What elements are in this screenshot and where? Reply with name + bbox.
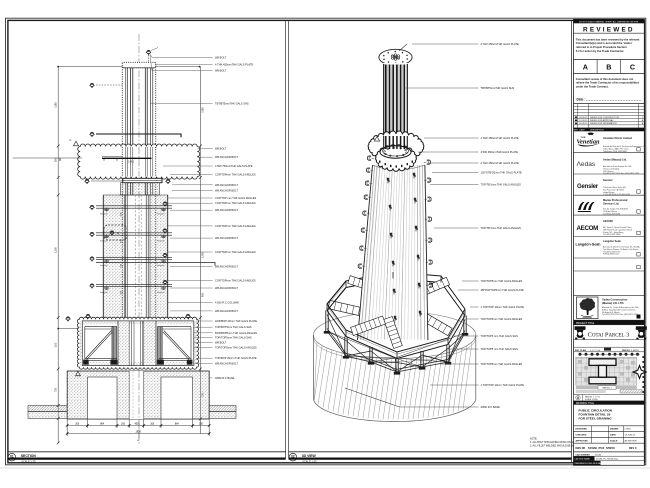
svg-text:4/500 R.C BASE: 4/500 R.C BASE <box>481 405 501 409</box>
svg-text:W8 BOLT: W8 BOLT <box>215 69 227 73</box>
svg-text:LUNG: LUNG <box>625 429 631 431</box>
svg-text:SCALE 1:25: SCALE 1:25 <box>302 460 317 464</box>
svg-text:under the Trade Contract.: under the Trade Contract. <box>576 84 609 88</box>
svg-text:W8 ANCHOR BOLT: W8 ANCHOR BOLT <box>215 286 238 290</box>
svg-text:5152B_PC_S5050.dwg: 5152B_PC_S5050.dwg <box>596 459 618 461</box>
svg-text:DWG NO: DWG NO <box>576 448 586 450</box>
svg-text:KEY PLAN: KEY PLAN <box>575 349 586 352</box>
svg-text:HOP/BOP 20mm THK GALS PLATE: HOP/BOP 20mm THK GALS PLATE <box>215 319 257 323</box>
svg-text:Tel: (853) 2878 6281: Tel: (853) 2878 6281 <box>603 213 620 215</box>
svg-text:1185: 1185 <box>200 107 204 113</box>
svg-text:TBT/BT5mmTHK GALS SHS: TBT/BT5mmTHK GALS SHS <box>215 102 249 106</box>
svg-text:W8 ANCHOR BOLT: W8 ANCHOR BOLT <box>215 183 238 187</box>
svg-text:TOP/BOP 20mm THK GALS PLATE: TOP/BOP 20mm THK GALS PLATE <box>215 356 257 360</box>
svg-text:DATE: DATE <box>580 129 586 132</box>
svg-text:ISSUED FOR INFORMATION: ISSUED FOR INFORMATION <box>590 122 617 125</box>
svg-text:W8 ANCHOR BOLT: W8 ANCHOR BOLT <box>215 188 238 192</box>
svg-text:Date :: Date : <box>577 97 586 101</box>
svg-text:PARCEL 1: PARCEL 1 <box>602 387 612 390</box>
svg-text:SECTION: SECTION <box>21 454 37 458</box>
svg-text:COTAI PARCEL 3: COTAI PARCEL 3 <box>588 331 630 338</box>
svg-text:(Macau) CO. LTD.: (Macau) CO. LTD. <box>602 301 624 305</box>
svg-text:TOP/TOP5mm THK GALS ANGLES: TOP/TOP5mm THK GALS ANGLES <box>481 362 523 366</box>
svg-text:COP/TOPmm THK GALS ANGLES: COP/TOPmm THK GALS ANGLES <box>215 224 256 228</box>
svg-text:TBT/BT5mmTHK GALS SHS: TBT/BT5mmTHK GALS SHS <box>481 86 515 90</box>
svg-text:REVIEWED: REVIEWED <box>583 26 635 33</box>
svg-text:Services Ltd.: Services Ltd. <box>603 201 619 205</box>
svg-text:1 TOP/TOP 10mm THK GALS PLATE: 1 TOP/TOP 10mm THK GALS PLATE <box>481 305 525 309</box>
svg-text:W8 ANCHOR BOLT: W8 ANCHOR BOLT <box>215 236 238 240</box>
svg-text:TOP/TOP5mm THK GALS SHS: TOP/TOP5mm THK GALS SHS <box>215 335 252 339</box>
svg-text:Tel: (852) 3922 9000: Tel: (852) 3922 9000 <box>603 234 620 236</box>
svg-text:1185: 1185 <box>54 102 58 108</box>
svg-text:14-JUN-15: 14-JUN-15 <box>625 435 636 437</box>
svg-text:120*OTB*20mm THK GALS PLATE: 120*OTB*20mm THK GALS PLATE <box>481 171 522 175</box>
svg-text:12-03-15: 12-03-15 <box>579 120 588 122</box>
svg-text:5152B_PC2_S5050: 5152B_PC2_S5050 <box>588 446 615 450</box>
svg-text:DO NOT SCALE DRAWING. VERIFY A: DO NOT SCALE DRAWING. VERIFY ALL DIMENSI… <box>579 20 639 23</box>
svg-text:TOP/TOP5mm THK GALS ANGLES: TOP/TOP5mm THK GALS ANGLES <box>481 279 523 283</box>
svg-text:Langdon Seah: Langdon Seah <box>603 239 621 243</box>
svg-text:COP/TOPmm THK GALS ANGLES: COP/TOPmm THK GALS ANGLES <box>215 172 256 176</box>
svg-text:W8 BOLT: W8 BOLT <box>215 147 227 151</box>
svg-text:REV: REV <box>574 130 579 132</box>
svg-text:SCALE: SCALE <box>610 439 618 442</box>
svg-text:T 415.433.3700 F 415.836.4599: T 415.433.3700 F 415.836.4599 <box>603 194 630 196</box>
svg-text:02-04-15: 02-04-15 <box>579 117 588 119</box>
svg-text:COP/TOPmm THK GALS ANGLES: COP/TOPmm THK GALS ANGLES <box>215 250 256 254</box>
svg-text:4 500 450mmTHK GALS PLATE: 4 500 450mmTHK GALS PLATE <box>481 150 519 154</box>
svg-text:W8 BOLT: W8 BOLT <box>215 56 227 60</box>
svg-text:2928: 2928 <box>136 431 142 433</box>
svg-text:SCALE 1:25: SCALE 1:25 <box>21 460 36 464</box>
svg-text:DRAWING TITLE: DRAWING TITLE <box>576 402 594 405</box>
svg-text:4/500 R.C BASE: 4/500 R.C BASE <box>215 376 235 380</box>
svg-text:DESIGNED: DESIGNED <box>576 429 588 431</box>
svg-text:510: 510 <box>54 342 58 347</box>
svg-text:W8 BOLT: W8 BOLT <box>215 340 227 344</box>
svg-text:CAD NUMBER: CAD NUMBER <box>576 453 591 456</box>
svg-text:4 500 750mmTHK GALS PLATE: 4 500 750mmTHK GALS PLATE <box>215 164 253 168</box>
svg-text:CHECKED: CHECKED <box>576 435 587 437</box>
svg-text:PROJECT TITLE: PROJECT TITLE <box>576 322 595 325</box>
svg-text:W8 ANCHOR BOLT: W8 ANCHOR BOLT <box>215 265 238 269</box>
svg-text:COP/TOP mm THK GALS ANGLES: COP/TOP mm THK GALS ANGLES <box>215 196 256 200</box>
svg-text:W8 ANCHOR BOLT: W8 ANCHOR BOLT <box>215 362 238 366</box>
svg-text:PARCEL 1, LOT 3: PARCEL 1, LOT 3 <box>622 349 639 352</box>
svg-text:Gensler: Gensler <box>603 178 613 182</box>
svg-text:FOR STEEL DRAWING: FOR STEEL DRAWING <box>579 417 613 421</box>
svg-text:DESCRIPTION: DESCRIPTION <box>590 130 604 132</box>
svg-text:4 500 R.C COLUMN: 4 500 R.C COLUMN <box>215 300 239 304</box>
svg-text:A: A <box>583 63 588 72</box>
svg-text:Gensler: Gensler <box>577 184 599 190</box>
svg-text:B: B <box>606 63 611 72</box>
svg-text:APPROVED: APPROVED <box>576 439 589 442</box>
svg-text:1 TOP/TOP 10mm THK GALS PLATE: 1 TOP/TOP 10mm THK GALS PLATE <box>481 383 525 387</box>
svg-text:DRAWN: DRAWN <box>610 428 619 431</box>
svg-text:Tel: (853) 2871 5622 Fax: (85: Tel: (853) 2871 5622 Fax: (853) 2871 563… <box>603 173 639 175</box>
svg-text:W8 ANCHOR BOLT: W8 ANCHOR BOLT <box>215 155 238 159</box>
svg-text:1 M 1: 1 M 1 <box>128 161 135 164</box>
svg-text:PARCEL 1, LOT 2: PARCEL 1, LOT 2 <box>585 395 600 398</box>
svg-text:TOP/TB 5mm THK GALS ANGLES: TOP/TB 5mm THK GALS ANGLES <box>481 183 522 187</box>
svg-text:4B/TOP/TOP5mm THK GALS PLATE: 4B/TOP/TOP5mm THK GALS PLATE <box>481 288 524 292</box>
svg-text:BOP/BOP5mm THK GALS ANGLES: BOP/BOP5mm THK GALS ANGLES <box>215 331 257 335</box>
svg-text:This document has been rev: This document has been reviewed by the r… <box>576 37 640 41</box>
svg-text:4 THK 450mmTHK GALS PLATE: 4 THK 450mmTHK GALS PLATE <box>215 63 254 67</box>
svg-text:SCALE 1:2000: SCALE 1:2000 <box>585 398 598 401</box>
svg-text:4 THK 450mmTHK GALS PLATE: 4 THK 450mmTHK GALS PLATE <box>481 161 520 165</box>
svg-text:4 THK 450mmTHK GALS PLATE: 4 THK 450mmTHK GALS PLATE <box>481 136 520 140</box>
svg-text:COP/TOPmm THK GALS ANGLES: COP/TOPmm THK GALS ANGLES <box>215 279 256 283</box>
svg-text:TOP/TOP5mm THK GALS ANGLES: TOP/TOP5mm THK GALS ANGLES <box>481 317 523 321</box>
svg-text:referred to in Project: referred to in Project Procedure Section <box>576 45 627 49</box>
svg-text:Aedas (Macau) Ltd.: Aedas (Macau) Ltd. <box>603 158 627 162</box>
svg-text:TOP/TB 5mm THK GALS ANGLES: TOP/TB 5mm THK GALS ANGLES <box>481 226 522 230</box>
svg-text:1250: 1250 <box>200 252 204 258</box>
svg-text:AECOM: AECOM <box>603 219 613 223</box>
svg-text:TOP/TOP5 mm THK GALS SHS: TOP/TOP5 mm THK GALS SHS <box>481 347 519 351</box>
svg-text:Venetian Orient Limited: Venetian Orient Limited <box>603 136 632 140</box>
svg-text:20-02-15: 20-02-15 <box>579 123 588 125</box>
svg-text:5.4 for action by the Tra: 5.4 for action by the Trade Contractor. <box>576 49 625 53</box>
svg-text:TOP/BOT5mm THK GALS SHS: TOP/BOT5mm THK GALS SHS <box>215 325 252 329</box>
svg-text:M: M <box>117 232 119 235</box>
svg-text:ISSUED FOR APPROVAL: ISSUED FOR APPROVAL <box>590 119 614 122</box>
svg-text:REFERENCE DWG FILE NAME: REFERENCE DWG FILE NAME <box>575 462 605 465</box>
svg-text:REV C: REV C <box>629 447 637 450</box>
svg-text:TOP/TOP5mm THK GALS ANGLES: TOP/TOP5mm THK GALS ANGLES <box>215 346 257 350</box>
svg-text:W8 ANCHOR BOLT: W8 ANCHOR BOLT <box>215 309 238 313</box>
svg-text:AECOM: AECOM <box>577 225 599 232</box>
svg-text:W8 ANCHOR BOLT: W8 ANCHOR BOLT <box>215 208 238 212</box>
svg-text:COP/TOPmm THK GALS ANGLES: COP/TOPmm THK GALS ANGLES <box>215 201 256 205</box>
svg-text:Consultant review of this: Consultant review of this document does … <box>576 77 634 81</box>
svg-text:AS SHOWN: AS SHOWN <box>625 439 637 442</box>
svg-text:3D VIEW: 3D VIEW <box>302 454 317 458</box>
svg-text:Tel: (853) 2875 3313 Fax: (85: Tel: (853) 2875 3313 Fax: (853) 2875 331… <box>602 314 638 316</box>
svg-text:1250: 1250 <box>54 247 58 253</box>
svg-text:ISSUED FOR CONSTRUCTION: ISSUED FOR CONSTRUCTION <box>590 117 619 119</box>
svg-text:Consultant(s)(s) and is acc: Consultant(s)(s) and is accorded the 'st… <box>576 41 633 45</box>
svg-text:CAD FILE NAME: CAD FILE NAME <box>575 458 591 461</box>
svg-text:F (853) 2833 1532: F (853) 2833 1532 <box>603 254 619 256</box>
svg-text:Telephone: (853) 2882 8888: Telephone: (853) 2882 8888 <box>603 151 627 153</box>
svg-text:C: C <box>630 63 635 72</box>
svg-text:relieve the Trade Contracto: relieve the Trade Contractor of its resp… <box>576 81 640 85</box>
svg-text:S 1:2 T 5.04: S 1:2 T 5.04 <box>590 350 600 352</box>
svg-text:TOP/TOP5 mm THK GALS SHS: TOP/TOP5 mm THK GALS SHS <box>481 334 519 338</box>
svg-text:Λedas: Λedas <box>577 161 596 168</box>
svg-text:4 THK 450mmTHK GALS PLATE: 4 THK 450mmTHK GALS PLATE <box>481 42 520 46</box>
svg-text:900: 900 <box>200 292 204 297</box>
svg-text:Langdon·Seah: Langdon·Seah <box>576 243 601 247</box>
svg-text:5152B: 5152B <box>595 454 602 456</box>
svg-text:DATE: DATE <box>610 434 616 437</box>
svg-text:750: 750 <box>54 387 58 392</box>
